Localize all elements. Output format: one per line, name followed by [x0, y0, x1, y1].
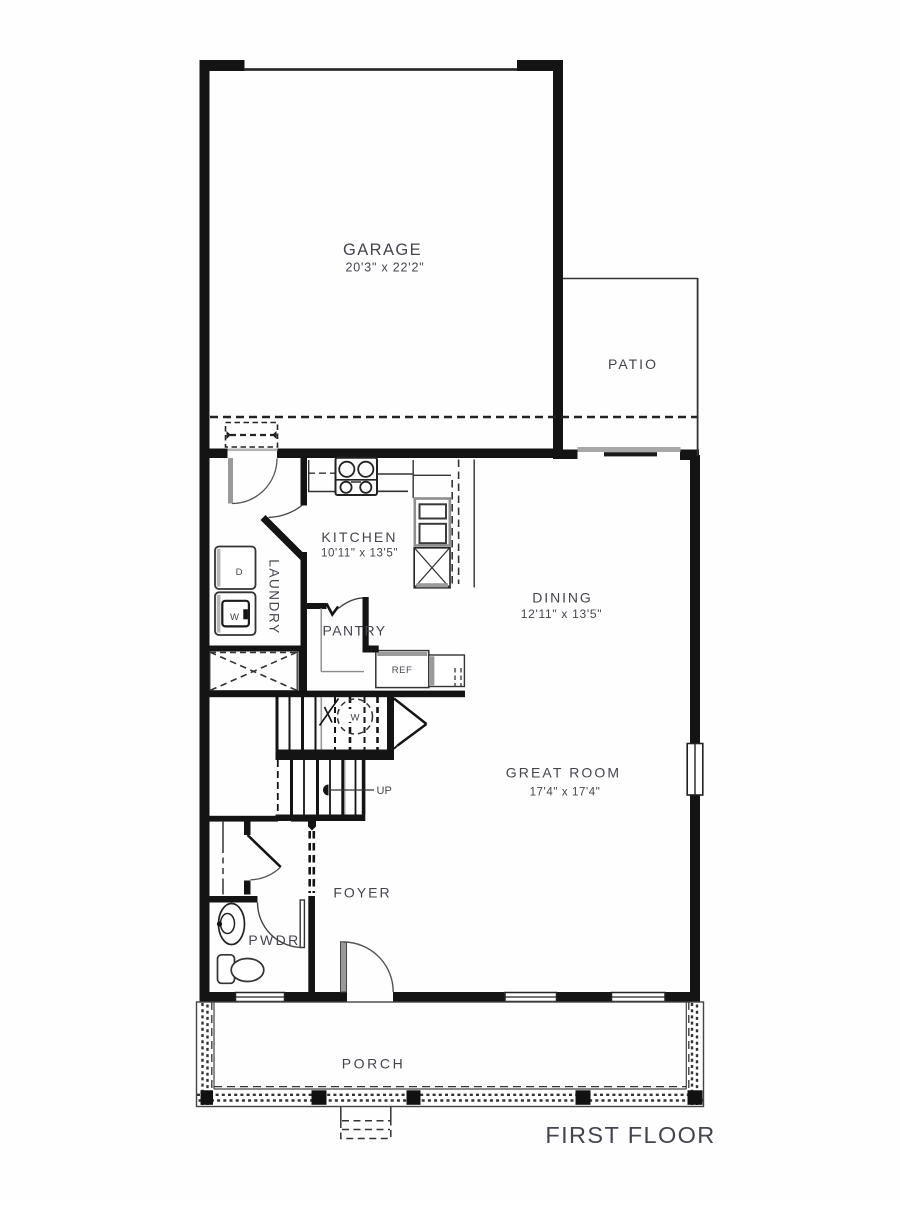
svg-text:DINING: DINING — [532, 590, 592, 606]
svg-text:GREAT ROOM: GREAT ROOM — [506, 765, 621, 781]
svg-text:W: W — [230, 612, 239, 623]
svg-text:UP: UP — [377, 785, 392, 797]
svg-text:17'4" x 17'4": 17'4" x 17'4" — [530, 787, 601, 799]
svg-text:20'3" x 22'2": 20'3" x 22'2" — [346, 261, 425, 275]
svg-text:12'11" x 13'5": 12'11" x 13'5" — [521, 607, 602, 621]
svg-text:LAUNDRY: LAUNDRY — [267, 559, 282, 634]
svg-text:FIRST FLOOR: FIRST FLOOR — [545, 1122, 715, 1148]
svg-text:GARAGE: GARAGE — [343, 241, 422, 259]
svg-text:KITCHEN: KITCHEN — [321, 529, 397, 545]
svg-text:D: D — [236, 567, 243, 578]
svg-text:PWDR: PWDR — [248, 932, 300, 948]
svg-text:10'11" x 13'5": 10'11" x 13'5" — [321, 548, 398, 560]
svg-text:FOYER: FOYER — [333, 885, 391, 901]
svg-text:PATIO: PATIO — [608, 356, 658, 372]
svg-text:W: W — [351, 713, 360, 724]
svg-text:PORCH: PORCH — [342, 1056, 406, 1072]
svg-text:REF: REF — [392, 665, 413, 676]
svg-text:PANTRY: PANTRY — [323, 623, 387, 639]
